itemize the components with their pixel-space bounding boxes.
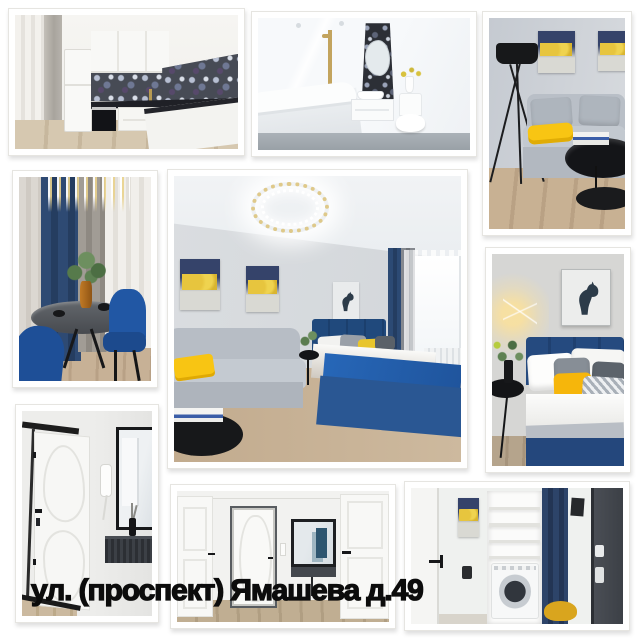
floor-lamp-shade [496, 43, 538, 64]
dining-scene [19, 177, 151, 381]
shelf [489, 523, 540, 526]
gold-abstract-art [458, 498, 479, 537]
crystal-chandelier [48, 177, 130, 212]
books-stack [573, 132, 608, 145]
door-handle [208, 553, 215, 555]
living-room-scene [174, 176, 461, 462]
agate-backsplash-left [91, 73, 169, 101]
bathroom-floor [258, 133, 470, 150]
upper-cabinets [91, 31, 169, 73]
shelf [489, 540, 540, 543]
gold-abstract-art [246, 266, 279, 312]
door-handle [268, 557, 273, 560]
yellow-pouf [544, 601, 578, 621]
fluted-console [105, 536, 152, 563]
amber-vase [80, 281, 92, 308]
door-lock [595, 545, 603, 557]
photo-dining [12, 170, 158, 388]
intercom-panel [280, 543, 286, 556]
ring-chandelier [251, 182, 328, 233]
coffee-table-base [576, 187, 625, 210]
toilet-tank [399, 93, 422, 115]
horse-silhouette [570, 273, 601, 323]
sofa-cushion [578, 95, 620, 127]
ceiling-spotlight [339, 21, 344, 26]
gold-abstract-art [180, 259, 220, 310]
black-wall-panel [570, 497, 584, 516]
washer-control-panel [494, 566, 536, 570]
blob-mirror [365, 40, 390, 76]
shelf [489, 556, 540, 559]
floor [439, 614, 488, 624]
horse-silhouette [337, 285, 355, 317]
light-switch [462, 566, 473, 580]
photo-sofa-corner [482, 11, 632, 236]
door-handle [35, 509, 42, 513]
gold-faucet [149, 89, 152, 101]
shelf [489, 507, 540, 510]
photo-bathroom [251, 11, 477, 157]
horse-artwork [333, 282, 359, 321]
yellow-throw-blanket [528, 122, 574, 145]
side-table-leg [307, 359, 309, 385]
intercom-handset [100, 464, 112, 497]
photo-laundry [404, 481, 630, 631]
door-panel [183, 507, 206, 552]
plant [295, 328, 321, 351]
countertop-basin [357, 91, 385, 100]
photo-kitchen [8, 8, 245, 156]
door-hinge [33, 559, 36, 565]
black-diffuser-vase [129, 518, 136, 536]
toilet-bowl [396, 114, 426, 131]
address-caption: ул. (проспект) Ямашева д.49 [31, 574, 423, 608]
yellow-flowers [399, 67, 422, 79]
door-hinge [33, 452, 36, 458]
blue-chair-seat [103, 332, 145, 352]
door-handle [342, 551, 350, 553]
photo-bedroom [485, 247, 631, 473]
chair-leg [114, 350, 117, 381]
door-lock [36, 518, 40, 526]
refrigerator [64, 49, 92, 132]
bed-base [526, 438, 624, 466]
door-lock [595, 567, 603, 583]
bedroom-scene [492, 254, 624, 466]
plant-sprigs [492, 330, 526, 368]
coffee-cup [53, 310, 65, 317]
sofa-corner-scene [489, 18, 625, 229]
sofa-base [174, 382, 303, 408]
photo-living-room [167, 169, 468, 469]
door-handle-bar [440, 555, 444, 569]
kitchen-scene [15, 15, 238, 149]
horse-artwork [561, 269, 611, 326]
door-panel [347, 501, 383, 548]
gold-abstract-art [538, 31, 575, 73]
laundry-scene [411, 488, 623, 624]
vanity-cabinet [351, 99, 393, 121]
bathroom-scene [258, 18, 470, 150]
window [415, 256, 461, 359]
gold-abstract-art [598, 31, 625, 71]
washer-door [499, 574, 531, 609]
lit-mirror [291, 519, 336, 567]
books-stack [174, 408, 223, 422]
built-in-oven [92, 107, 117, 131]
